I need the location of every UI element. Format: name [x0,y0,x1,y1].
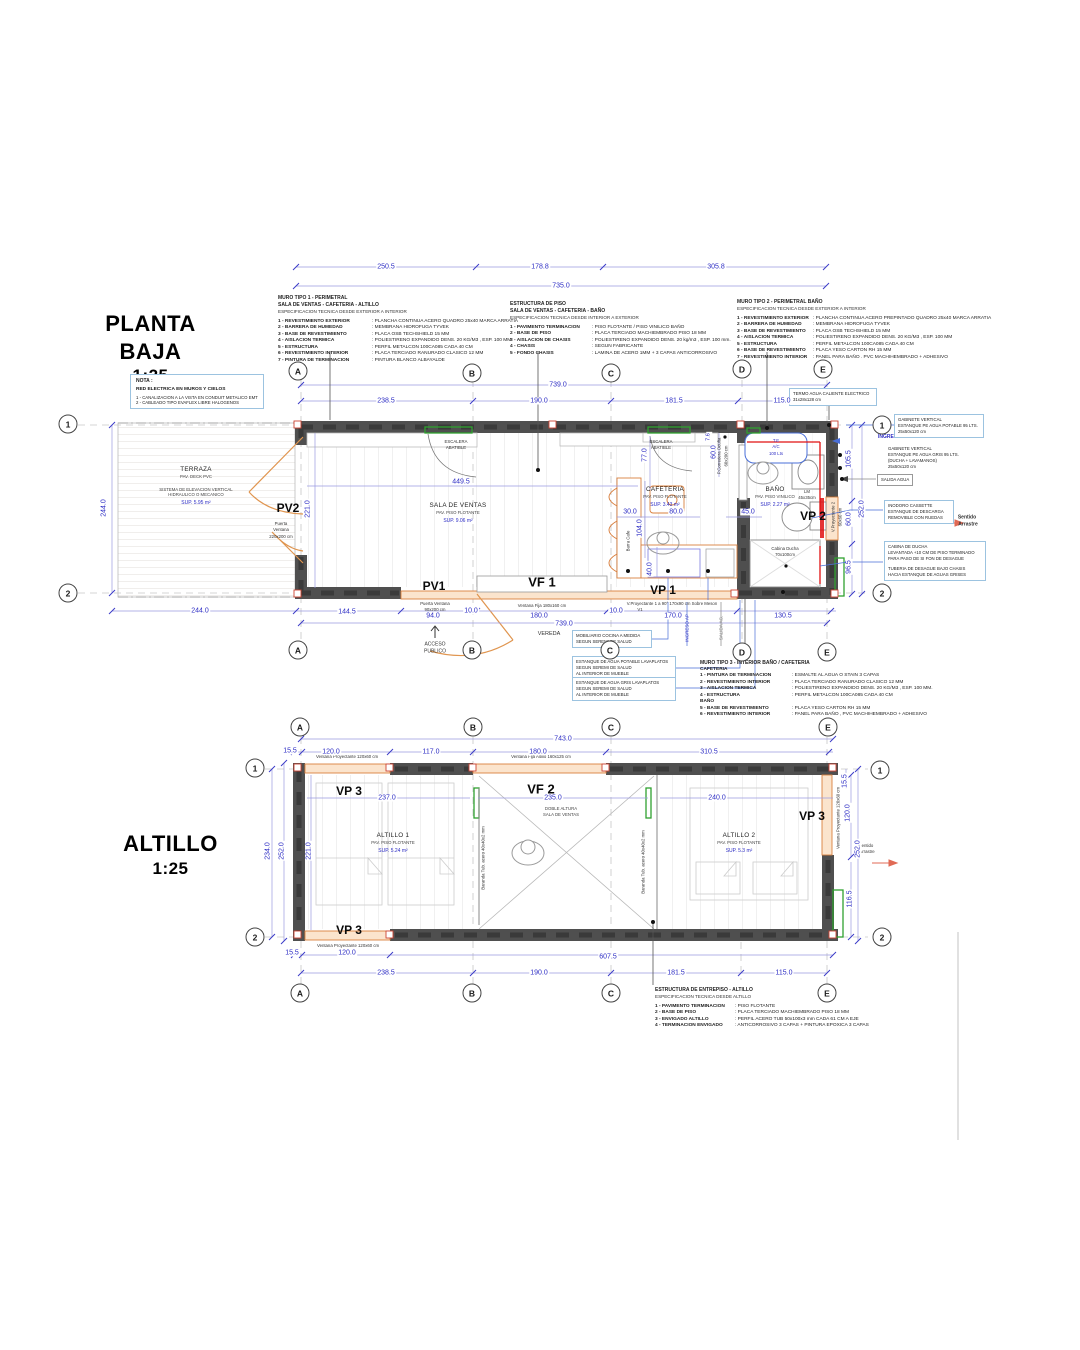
room-terraza: TERRAZA PAV. DECK PVC SISTEMA DE ELEVACI… [159,466,232,506]
vf1-label: Ventana Fija 180x160 cm [518,603,567,609]
dim-label: 116.5 [847,890,854,909]
spec-val: : PINTURA BLANCO ALBAYALDE [372,358,445,364]
grid-bubble-b: B [463,641,482,660]
spec-val: : LAMINA DE ACERO 1MM + 3 CAPAS ANTICORR… [592,351,717,357]
acceso-arrow [431,626,439,638]
room-pav: PAV. PISO VINILICO [755,494,795,500]
dim-label: 252.0 [279,841,286,861]
tag-vp2: VP 2 [800,509,826,523]
tag-vp3-top: VP 3 [336,784,362,798]
dim-label: 80.0 [668,509,684,516]
note-line: REMOVIBLE CON RUEDAS [888,515,950,521]
grid-bubble-d: D [733,360,752,379]
dim-label: 739.0 [548,382,568,389]
grid-bubble-e: E [814,360,833,379]
dim-label: 234.0 [265,841,272,861]
grid-bubble-c: C [601,641,620,660]
dim-label: 238.5 [376,970,396,977]
dim-label: 739.0 [554,621,574,628]
vp2-label-1: V.Proyectante 2 [831,502,836,532]
dim-label: 30.0 [622,509,638,516]
spec-estructura-piso: ESTRUCTURA DE PISO SALA DE VENTAS - CAFE… [510,301,734,357]
acceso-label-2: PUBLICO [424,648,446,655]
dim-label: 105.5 [846,449,853,469]
grid-bubble-e: E [818,984,837,1003]
note-line: HACIA ESTANQUE DE AGUAS GRISES [888,572,982,578]
dim-label: 15.5 [282,748,298,755]
spec-key: 7 - REVESTIMIENTO INTERIOR [737,355,813,361]
te-label-2: A/C [772,444,779,450]
room-pav: PAV. PISO FLOTANTE [643,494,687,500]
barra-cafe-label: Barra Cafe [626,531,631,552]
dim-label: 45.0 [740,509,756,516]
grid-bubble-b: B [463,984,482,1003]
room-name: BAÑO [755,486,795,494]
vp1-label-2: V1 [637,607,642,613]
note-line: AL INTERIOR DE MUEBLE [576,692,672,698]
spec-title: MURO TIPO 1 - PERIMETRAL [278,295,506,302]
note-salida-agua: SALIDA AGUA [877,474,913,486]
spec-val: : PANEL PARA BAÑO . PVC MACHIHEMBRADO + … [813,355,948,361]
grid-bubble-c: C [602,984,621,1003]
pv2-label-3: 220x200 cm [269,534,292,540]
spec-title2: SALA DE VENTAS - CAFETERIA - ALTILLO [278,302,506,309]
vp3-right-label: Ventana Proyectante 120x60 cm [836,787,841,849]
sentido-arrastre-2: Arrastre [958,521,977,528]
spec-desc: ESPECIFICACION TECNICA DESDE EXTERIOR A … [278,309,506,315]
floor-plan-sheet: PLANTA BAJA 1:25 ALTILLO 1:25 NOTA : RED… [0,0,1080,1350]
tag-pv1: PV1 [423,579,446,593]
grid-bubble-a: A [291,984,310,1003]
spec-key: 6 - REVESTIMIENTO INTERIOR [700,712,792,718]
dim-label: 178.8 [530,264,550,271]
grid-bubble-b: B [464,718,483,737]
note-inodoro: INODORO CASSETTE ESTANQUE DE DESCARGA RE… [884,500,954,524]
dim-label: 144.5 [337,609,357,616]
note-line: 25x50x120 cm [898,429,980,435]
dim-label: 40.0 [647,561,654,577]
dim-label: 743.0 [553,736,573,743]
spec-val: : ANTICORROSIVO 3 CAPAS + PINTURA EPOXIC… [735,1023,869,1029]
dim-label: 115.0 [775,970,794,977]
terrace-deck [118,423,295,597]
escalera-label-2: ABATIBLE [446,445,466,451]
dim-label: 244.0 [101,498,108,518]
grid-bubble-1: 1 [873,416,892,435]
spec-entrepiso: ESTRUCTURA DE ENTREPISO - ALTILLO ESPECI… [655,987,900,1030]
spec-muro-tipo-3: MURO TIPO 3 - INTERIOR BAÑO / CAFETERIA … [700,660,985,719]
alt-title: ALTILLO 1:25 [108,830,233,879]
room-pav: PAV. PISO FLOTANTE [371,840,415,846]
room-sup: SUP. 9.06 m² [430,518,487,525]
grid-bubble-e: E [818,643,837,662]
dim-label: 104.0 [637,518,644,538]
pb-title-text: PLANTA BAJA [88,310,213,365]
grid-bubble-1: 1 [871,761,890,780]
dim-label: 10.0 [608,608,624,615]
grid-bubble-a: A [289,362,308,381]
dim-label: 240.0 [707,795,727,802]
note-line: PARA PASO DE SI FON DE DESAGUE [888,556,982,562]
spec-desc: ESPECIFICACION TECNICA DESDE ALTILLO [655,994,900,1000]
escalera-label-2: ABATIBLE [651,445,671,451]
ducha-label-2: 70x100cm [775,552,795,558]
note-line: SALIDA AGUA [881,477,909,483]
ingreso-ap-vertical: INGRESO AP [685,614,690,642]
grid-bubble-2: 2 [246,928,265,947]
spec-muro-tipo-2: MURO TIPO 2 - PERIMETRAL BAÑO ESPECIFICA… [737,299,985,361]
vp2-label-2: 60x60 cm [838,508,843,527]
lm-label-2: 45x35cm [798,495,815,501]
grid-bubble-2: 2 [873,584,892,603]
room-name: TERRAZA [159,466,232,474]
grid-bubble-c: C [602,364,621,383]
spec-desc: ESPECIFICACION TECNICA DESDE INTERIOR A … [510,315,734,321]
vp3-bottom-label: Ventana Proyectante 120x60 cm [317,943,379,949]
grid-bubble-a: A [289,641,308,660]
note-line: 31x28x128 cm [793,397,873,403]
grid-bubble-2: 2 [59,584,78,603]
room-altillo-2: ALTILLO 2 PAV. PISO FLOTANTE SUP. 5.3 m² [717,832,761,854]
grid-bubble-e: E [819,718,838,737]
dim-label: 235.0 [543,795,563,802]
nota-subtitle: RED ELECTRICA EN MUROS Y CIELOS [136,387,258,392]
doble-l1: DOBLE ALTURA [543,806,579,812]
dim-label: 180.0 [529,613,549,620]
dim-label: 607.5 [598,954,618,961]
dim-label: 305.8 [706,264,726,271]
dim-label: 96.5 [846,559,853,575]
dim-label: 77.0 [642,447,649,463]
dim-label: 190.0 [529,970,549,977]
room-doble-altura: DOBLE ALTURA SALA DE VENTAS [543,806,579,817]
grid-bubble-c: C [602,718,621,737]
room-name: SALA DE VENTAS [430,502,487,510]
spec-title: ESTRUCTURA DE ENTREPISO - ALTILLO [655,987,900,994]
room-cafeteria: CAFETERIA PAV. PISO FLOTANTE SUP. 3.43 m… [643,486,687,508]
grid-bubble-b: B [463,364,482,383]
spec-key: 4 - TERMINACION ENVIGADO [655,1023,735,1029]
dim-label: 181.5 [666,970,686,977]
room-bano: BAÑO PAV. PISO VINILICO SUP. 2.27 m² [755,486,795,508]
dim-label: 250.5 [376,264,396,271]
dim-label: 252.0 [859,499,866,519]
room-extra: HIDRAULICO O MECANICO [159,492,232,498]
dim-label: 238.5 [376,398,396,405]
dim-label: 60.0 [846,511,853,527]
room-altillo-1: ALTILLO 1 PAV. PISO FLOTANTE SUP. 5.24 m… [371,832,415,854]
spec-val: : PERFIL METALCON 100CA085 CADA 40 CM [792,693,893,699]
tag-vf1: VF 1 [528,575,555,590]
dim-label: 60.0 [711,444,718,460]
spec-desc: ESPECIFICACION TECNICA DESDE EXTERIOR A … [737,306,985,312]
room-name: CAFETERIA [643,486,687,494]
grid-bubble-2: 2 [873,928,892,947]
grid-bubble-1: 1 [59,415,78,434]
room-name: ALTILLO 1 [371,832,415,840]
pv2-label-2: Ventana [273,527,289,533]
room-sup: SUP. 5.3 m² [717,848,761,855]
spec-title: MURO TIPO 2 - PERIMETRAL BAÑO [737,299,985,306]
nota-title: NOTA : [136,378,258,384]
tag-vp1: VP 1 [650,583,676,597]
spec-title2: SALA DE VENTAS - CAFETERIA - BAÑO [510,308,734,315]
tag-vp3-bottom: VP 3 [336,923,362,937]
dim-label: 94.0 [425,613,441,620]
dim-label: 221.0 [306,841,313,861]
baranda-label: Baranda Tub. acero 40x40x2 mm [481,826,486,890]
dim-label: 237.0 [377,795,397,802]
note-cabina-ducha: CABINA DE DUCHA LEVANTADA +10 CM DE PISO… [884,541,986,581]
nota-line-2: 2 - CABLEADO TIPO EVAFLEX LIBRE HALOGENO… [136,400,258,405]
spec-key: 5 - FONDO CHASIS [510,351,592,357]
nota-box: NOTA : RED ELECTRICA EN MUROS Y CIELOS 1… [130,374,264,409]
grid-bubble-a: A [291,718,310,737]
dim-label: 180.0 [528,749,548,756]
room-name: ALTILLO 2 [717,832,761,840]
corredera-label-2: 60x200 cm [724,445,729,466]
room-sup: SUP. 5.95 m² [159,500,232,507]
note-gabinete-potable: GABINETE VERTICAL ESTANQUE PE AGUA POTAB… [894,414,984,438]
dim-label: 449.5 [451,479,471,486]
dim-label: 120.0 [845,803,852,823]
dim-label: 244.0 [190,608,210,615]
dim-label: 170.0 [663,613,683,620]
dim-label: 735.0 [551,283,571,290]
spec-title: ESTRUCTURA DE PISO [510,301,734,308]
counter-module [706,549,734,577]
salida-ag-vertical: SALIDA AG. [719,616,724,641]
sentido-arrastre-alt-2: Arrastre [859,849,874,855]
alt-title-scale: 1:25 [108,858,233,879]
dim-label: 221.0 [305,499,312,519]
dim-label: 130.5 [773,613,793,620]
note-termo: TERMO AGUA CALIENTE ELECTRICO 31x28x128 … [789,388,877,406]
dim-label: 310.5 [699,749,719,756]
dim-label: 115.0 [773,398,792,405]
grid-bubble-1: 1 [246,759,265,778]
note-line: 25x50x120 cm [888,464,959,470]
dim-label: 181.5 [664,398,684,405]
note-estanque-gris: ESTANQUE DE AGUA GRIS LAVAPLATOS SEGUN S… [572,677,676,701]
te-label-3: 100 Lts [769,451,783,457]
room-sup: SUP. 2.27 m² [755,502,795,509]
room-pav: PAV. PISO FLOTANTE [430,510,487,516]
dim-label: 120.0 [321,749,341,756]
doble-l2: SALA DE VENTAS [543,812,579,818]
dim-label: 15.5 [284,950,300,957]
dim-label: 10.0 [463,608,479,615]
tag-vp3-right: VP 3 [799,809,825,823]
dim-label: 120.0 [337,950,357,957]
dim-label: 190.0 [529,398,549,405]
baranda-label: Baranda Tub. acero 40x40x2 mm [641,830,646,894]
spec-val: : PANEL PARA BAÑO , PVC MACHIHEMBRADO + … [792,712,927,718]
dim-label: 117.0 [422,749,441,756]
vereda-label: VEREDA [538,631,561,639]
room-sup: SUP. 3.43 m² [643,502,687,509]
dim-label: 15.5 [842,773,849,789]
dim-label: 252.0 [855,839,862,859]
alt-title-text: ALTILLO [108,830,233,858]
grid-bubble-d: D [733,643,752,662]
room-sala: SALA DE VENTAS PAV. PISO FLOTANTE SUP. 9… [430,502,487,524]
note-gabinete-gris: GABINETE VERTICAL ESTANQUE PE AGUA GRIS … [888,446,959,470]
room-sup: SUP. 5.24 m² [371,848,415,855]
dim-label: 7.6 [706,432,712,442]
spec-muro-tipo-1: MURO TIPO 1 - PERIMETRAL SALA DE VENTAS … [278,295,506,364]
room-pav: PAV. PISO FLOTANTE [717,840,761,846]
tag-pv2: PV2 [277,501,300,515]
